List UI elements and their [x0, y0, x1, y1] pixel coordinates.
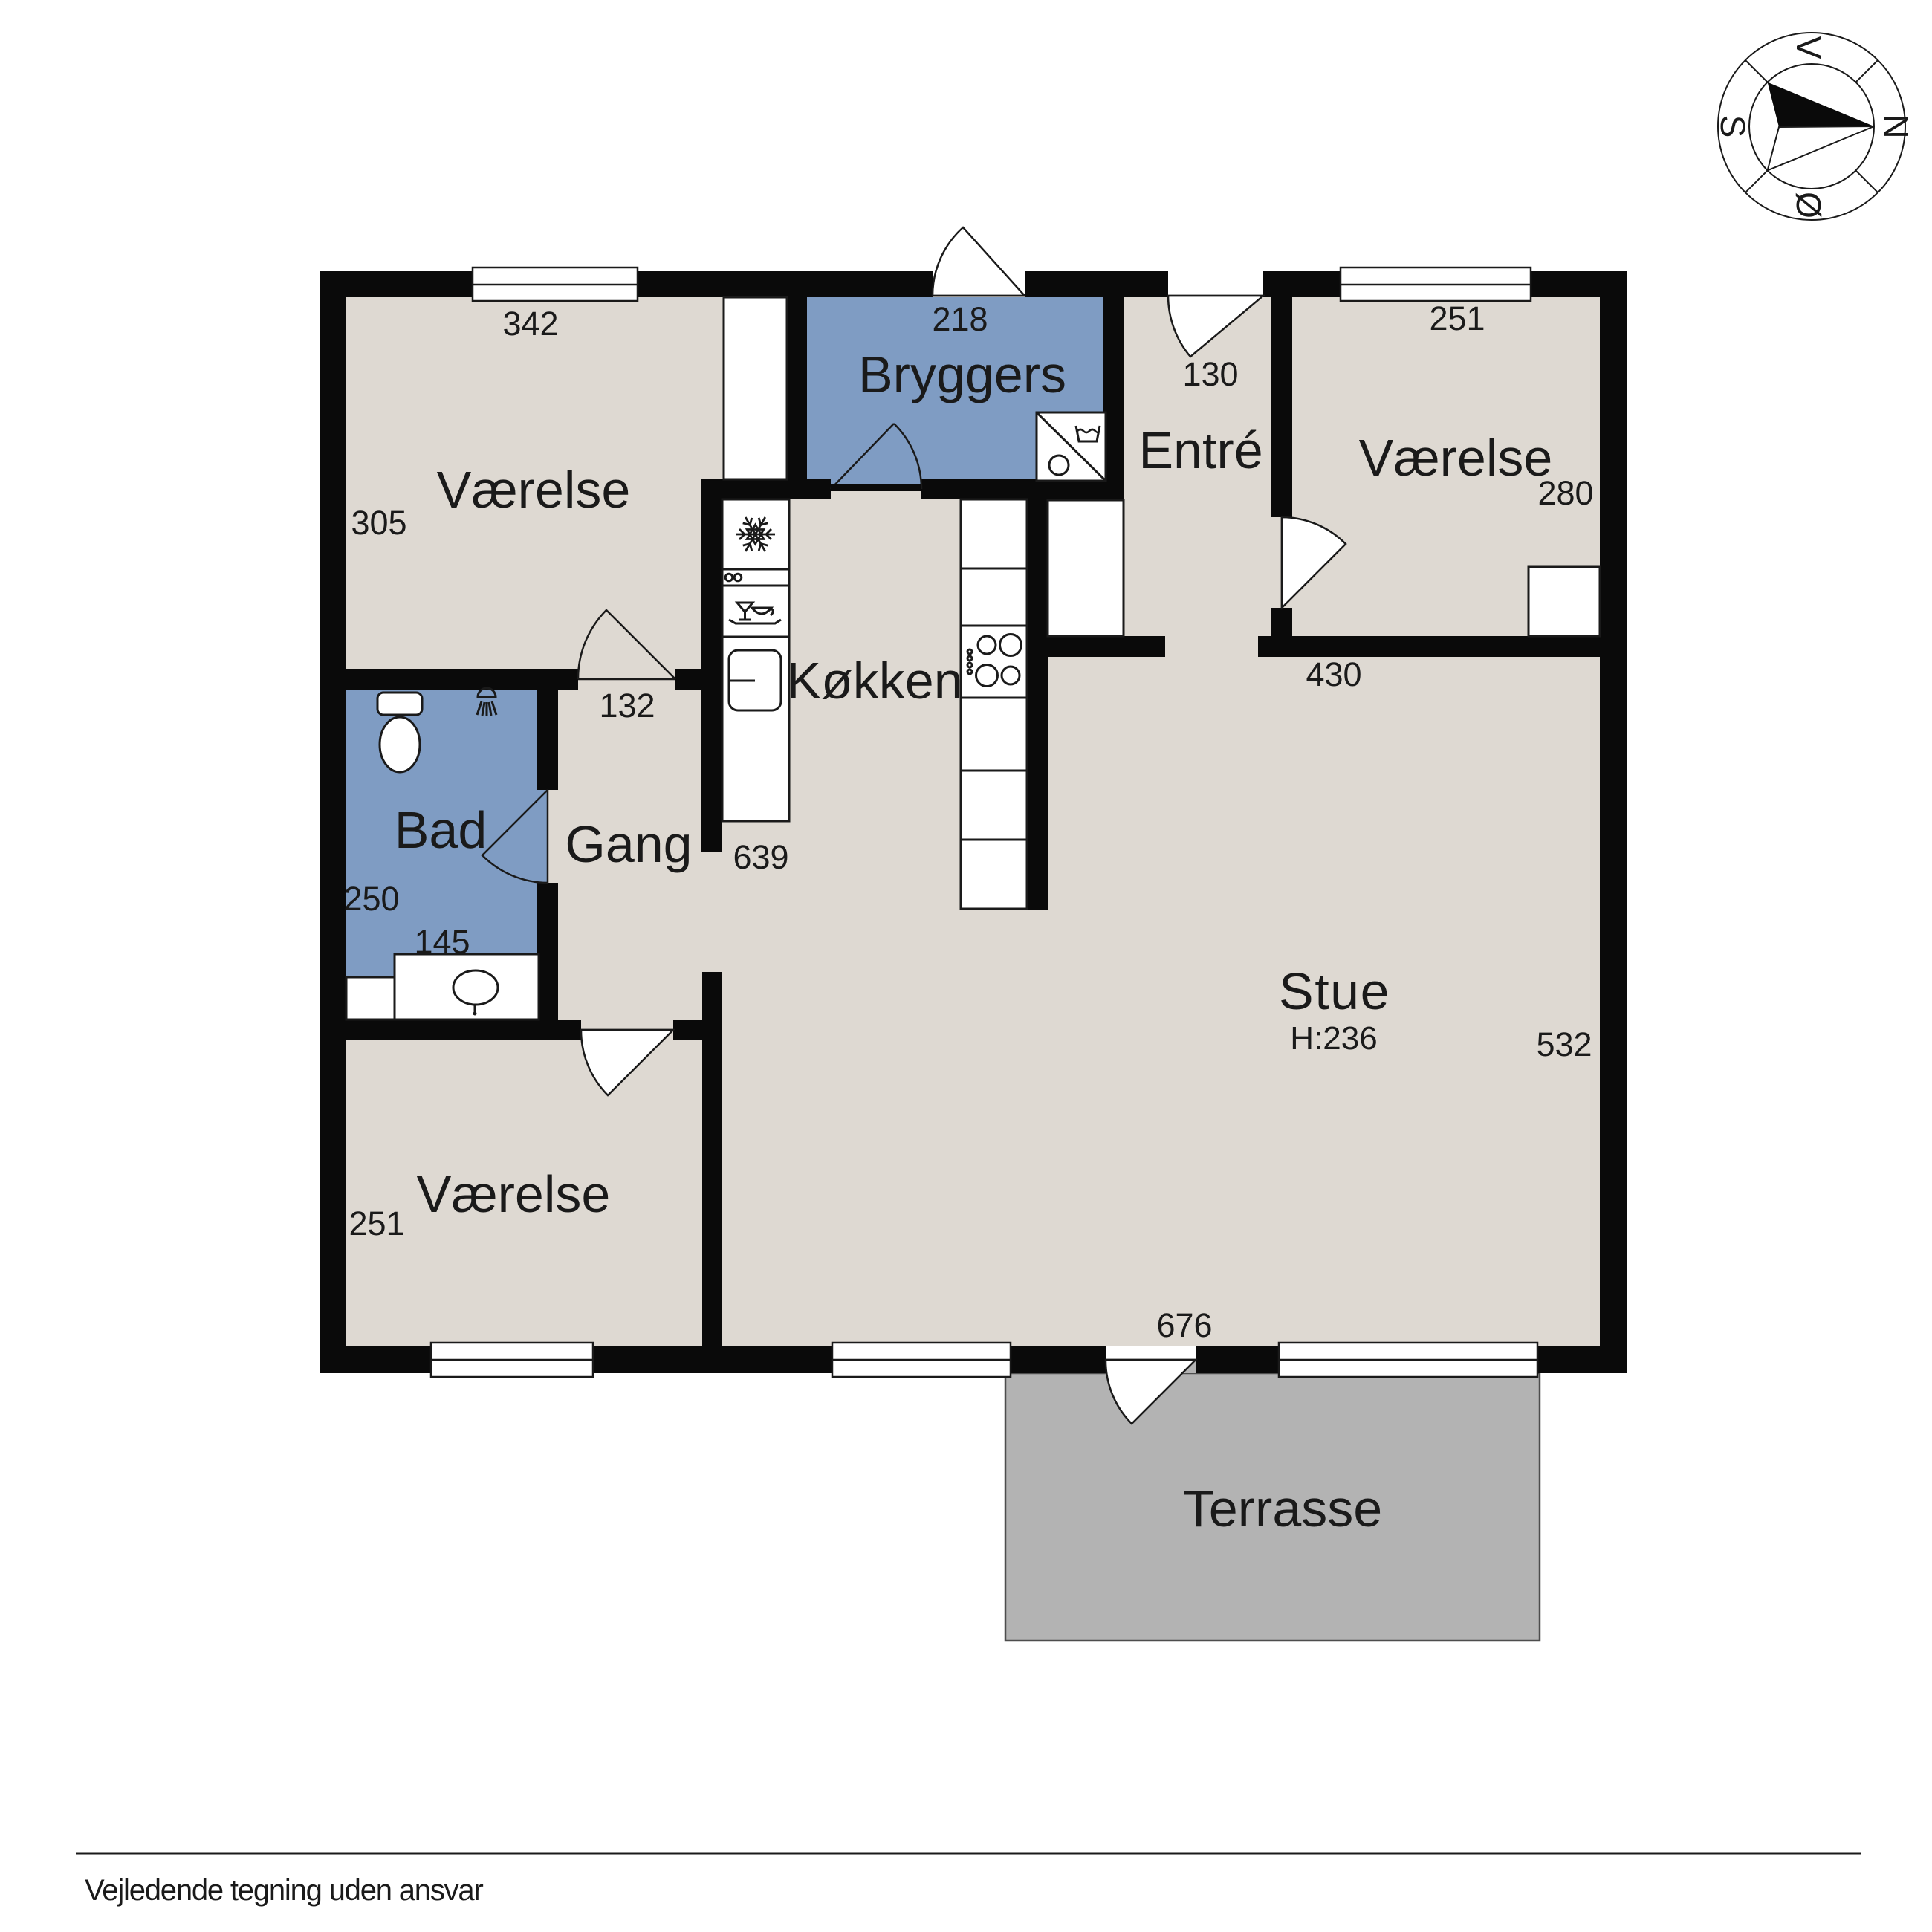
- svg-text:Stue: Stue: [1279, 962, 1390, 1020]
- svg-text:251: 251: [1429, 299, 1485, 337]
- svg-text:145: 145: [414, 923, 470, 961]
- svg-text:Køkken: Køkken: [786, 652, 962, 710]
- svg-text:280: 280: [1537, 474, 1593, 512]
- svg-text:H:236: H:236: [1290, 1020, 1377, 1057]
- svg-text:V: V: [1789, 36, 1828, 59]
- svg-text:Gang: Gang: [565, 815, 692, 873]
- svg-text:430: 430: [1306, 655, 1361, 693]
- svg-text:532: 532: [1536, 1025, 1592, 1063]
- svg-text:Terrasse: Terrasse: [1183, 1479, 1382, 1537]
- svg-text:S: S: [1714, 115, 1752, 138]
- svg-text:Ø: Ø: [1789, 192, 1828, 218]
- svg-text:250: 250: [343, 880, 399, 918]
- svg-text:130: 130: [1182, 355, 1238, 393]
- svg-text:Værelse: Værelse: [437, 461, 631, 519]
- svg-text:342: 342: [502, 305, 558, 343]
- svg-text:218: 218: [932, 300, 988, 338]
- svg-text:Bad: Bad: [395, 801, 487, 859]
- svg-text:251: 251: [349, 1205, 404, 1242]
- svg-text:N: N: [1877, 114, 1916, 138]
- svg-text:639: 639: [733, 838, 788, 876]
- svg-text:Entré: Entré: [1138, 421, 1262, 479]
- svg-text:132: 132: [599, 687, 655, 724]
- svg-text:676: 676: [1156, 1306, 1212, 1344]
- svg-text:Bryggers: Bryggers: [858, 346, 1066, 403]
- svg-text:Vejledende tegning uden ansvar: Vejledende tegning uden ansvar: [85, 1874, 483, 1907]
- svg-text:305: 305: [351, 504, 406, 542]
- svg-text:Værelse: Værelse: [1359, 429, 1553, 487]
- svg-text:Værelse: Værelse: [417, 1165, 611, 1223]
